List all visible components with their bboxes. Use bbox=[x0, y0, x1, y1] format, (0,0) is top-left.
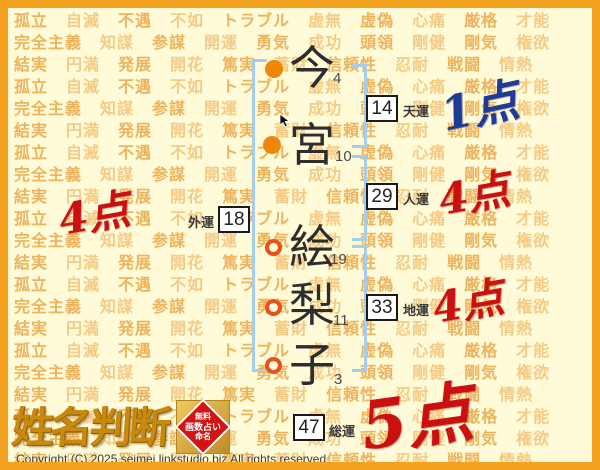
stroke-count: 10 bbox=[335, 148, 357, 165]
souun-label: 総運 bbox=[329, 421, 355, 440]
given-name-bullet-icon bbox=[265, 239, 282, 256]
chiun-value-box: 33 bbox=[366, 294, 398, 321]
jinun-label: 人運 bbox=[403, 189, 429, 208]
seal-line: 無料 bbox=[195, 412, 211, 422]
gaiun-label: 外運 bbox=[188, 212, 214, 231]
bracket-jinun bbox=[352, 155, 367, 241]
jinun-value-box: 29 bbox=[366, 183, 398, 210]
mouse-cursor-icon bbox=[279, 113, 291, 128]
stroke-count: 11 bbox=[333, 312, 355, 329]
free-naming-seal-badge[interactable]: 無料 画数占い 命名 bbox=[176, 400, 230, 454]
seimei-handan-result-page: 孤立自滅不遇不如トラブル虚無虚偽心痛厳格才能完全主義知謀参謀開運勇気成功頭領剛健… bbox=[0, 0, 600, 470]
seal-line: 命名 bbox=[195, 432, 211, 442]
given-name-bullet-icon bbox=[265, 299, 282, 316]
stroke-count: 19 bbox=[330, 251, 352, 268]
chiun-label: 地運 bbox=[403, 300, 429, 319]
site-logo[interactable]: 姓名判断 bbox=[10, 394, 170, 455]
tenun-value-box: 14 bbox=[366, 95, 398, 122]
tenun-label: 天運 bbox=[403, 101, 429, 120]
family-name-bullet-icon bbox=[265, 60, 283, 78]
bracket-full-name bbox=[252, 59, 267, 372]
bracket-chiun bbox=[352, 245, 367, 372]
copyright-text: Copyright (C) 2025 seimei.linkstudio.biz… bbox=[16, 452, 329, 466]
stroke-count: 4 bbox=[333, 70, 355, 87]
gaiun-score: 4点 bbox=[53, 175, 134, 247]
stroke-count: 3 bbox=[334, 371, 356, 388]
seal-line: 画数占い bbox=[185, 422, 221, 433]
jinun-score: 4点 bbox=[433, 155, 514, 227]
chiun-score: 4点 bbox=[427, 263, 508, 335]
gaiun-value-box: 18 bbox=[218, 206, 250, 233]
family-name-bullet-icon bbox=[263, 136, 281, 154]
given-name-bullet-icon bbox=[265, 357, 282, 374]
souun-score: 5点 bbox=[354, 359, 478, 470]
souun-value-box: 47 bbox=[293, 414, 325, 441]
